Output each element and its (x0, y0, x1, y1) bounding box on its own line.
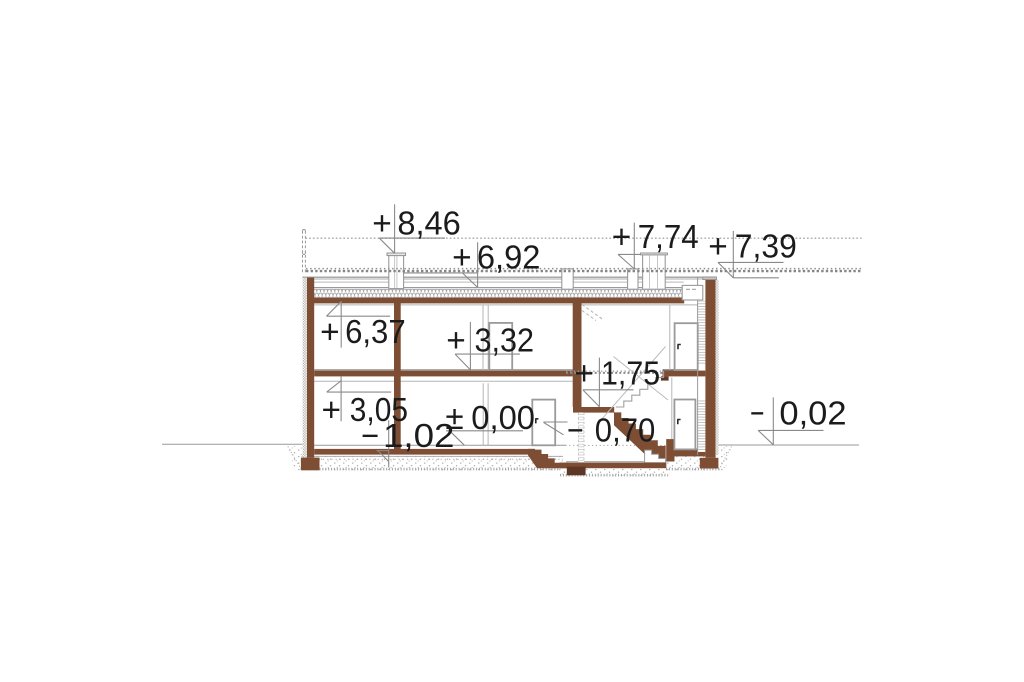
svg-text:+: + (446, 322, 466, 359)
svg-text:1,02: 1,02 (383, 418, 455, 455)
svg-text:1,75: 1,75 (601, 355, 660, 392)
svg-text:+: + (452, 239, 472, 276)
svg-text:6,92: 6,92 (477, 239, 541, 276)
svg-text:6,37: 6,37 (345, 314, 406, 351)
svg-text:−: − (361, 418, 379, 455)
svg-text:−: − (567, 413, 584, 450)
svg-text:7,39: 7,39 (735, 229, 797, 266)
svg-text:0,70: 0,70 (595, 413, 656, 450)
svg-text:+: + (372, 205, 392, 242)
svg-text:+: + (612, 219, 632, 256)
svg-text:−: − (750, 396, 764, 433)
svg-text:0,02: 0,02 (779, 396, 846, 433)
svg-text:+: + (320, 314, 340, 351)
svg-text:+: + (574, 355, 594, 392)
svg-text:3,32: 3,32 (475, 322, 535, 359)
svg-text:+: + (322, 392, 342, 429)
svg-text:+: + (708, 229, 728, 266)
svg-text:8,46: 8,46 (397, 205, 460, 242)
svg-text:0,00: 0,00 (471, 400, 535, 437)
svg-text:7,74: 7,74 (638, 219, 699, 256)
